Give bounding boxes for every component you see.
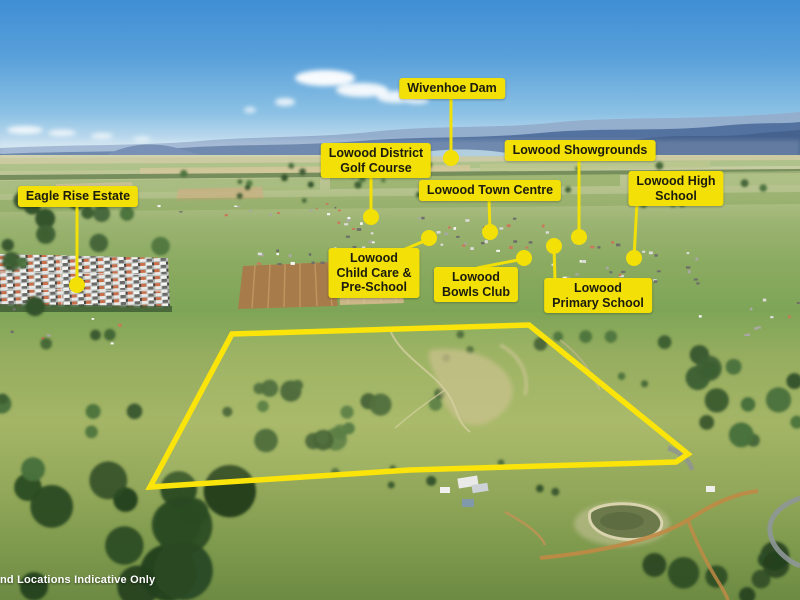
location-dot-lowood-primary-school (546, 238, 562, 254)
location-dot-lowood-town-centre (482, 224, 498, 240)
location-dot-wivenhoe-dam (443, 150, 459, 166)
location-dot-lowood-bowls-club (516, 250, 532, 266)
location-dot-lowood-child-care-pre-school (421, 230, 437, 246)
location-dot-lowood-high-school (626, 250, 642, 266)
disclaimer-text: nd Locations Indicative Only (0, 574, 155, 586)
location-dot-lowood-district-golf-course (363, 209, 379, 225)
terrain-art (0, 0, 800, 600)
ploughed-fields (238, 261, 404, 309)
location-dot-eagle-rise-estate (69, 277, 85, 293)
location-dot-lowood-showgrounds (571, 229, 587, 245)
farm-dam (574, 502, 670, 546)
aerial-photo: Wivenhoe DamLowood District Golf CourseL… (0, 0, 800, 600)
